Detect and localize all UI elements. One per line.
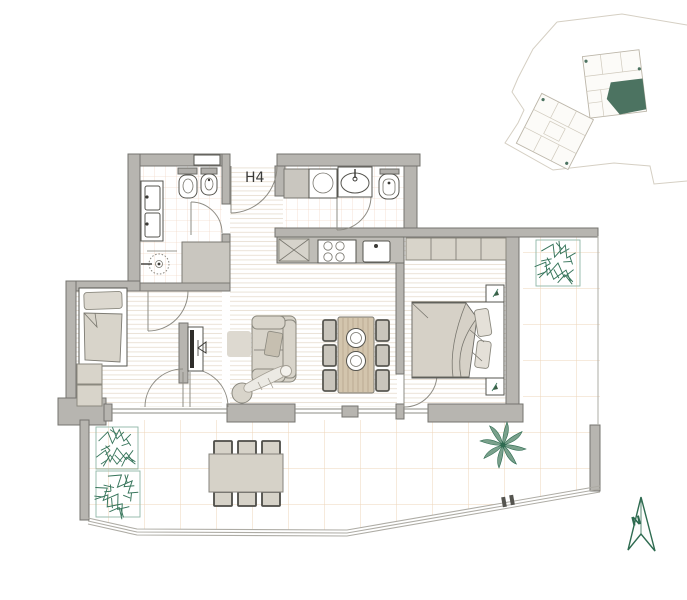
guest-sink-icon <box>338 167 372 197</box>
outdoor-chair <box>262 441 280 455</box>
plate <box>347 329 366 348</box>
double-bed <box>412 302 504 378</box>
wardrobe <box>406 238 506 260</box>
single-bed <box>79 288 127 366</box>
outdoor-dining-set <box>209 441 283 506</box>
outdoor-chair <box>214 441 232 455</box>
pillow <box>474 340 491 369</box>
corner-unit <box>279 239 309 261</box>
north-arrow: N <box>628 497 655 551</box>
site-key-plan <box>505 14 687 184</box>
hob-icon <box>318 240 356 263</box>
outdoor-chair <box>238 492 256 506</box>
unit-label: H4 <box>245 170 265 186</box>
outdoor-chair <box>262 492 280 506</box>
site-building-highlighted <box>582 50 646 118</box>
guest-toilet-icon <box>379 169 399 199</box>
outdoor-table <box>209 454 283 492</box>
bidet-icon <box>201 168 217 195</box>
plate <box>347 352 366 371</box>
rug <box>227 331 251 357</box>
utility-cabinet <box>284 169 309 198</box>
washing-machine-icon <box>309 169 337 198</box>
kitchen-sink-icon <box>363 241 390 262</box>
dining-area <box>323 317 389 393</box>
tv-unit <box>188 327 206 371</box>
bedside-cabinet <box>77 364 102 384</box>
nightstand <box>486 378 504 395</box>
outdoor-chair <box>214 492 232 506</box>
toilet-icon <box>178 168 197 198</box>
bathroom-cabinet <box>182 242 230 283</box>
nightstand <box>486 285 504 302</box>
guest-bathroom <box>284 167 399 199</box>
outdoor-chair <box>238 441 256 455</box>
bedside-cabinet <box>77 385 102 406</box>
dining-table <box>338 317 374 393</box>
floor-plan-page: H4 N <box>0 0 687 600</box>
high-window <box>194 155 220 165</box>
kitchen <box>277 237 404 263</box>
floor-plan-canvas: H4 N <box>0 0 687 600</box>
site-building-secondary <box>516 93 593 169</box>
